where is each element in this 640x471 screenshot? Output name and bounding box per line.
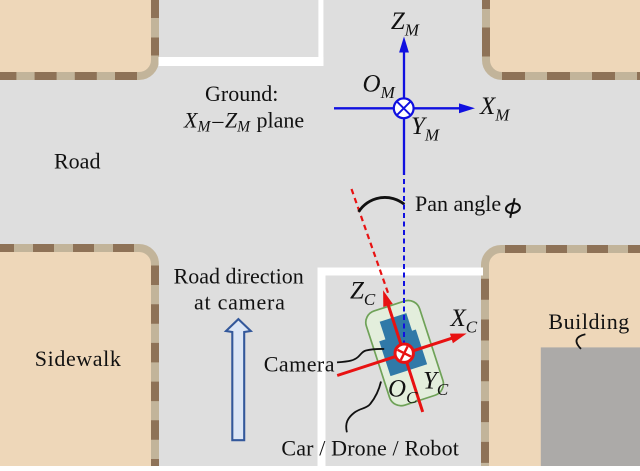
svg-text:Building: Building [548, 309, 629, 334]
svg-text:Camera: Camera [264, 352, 335, 377]
svg-text:Pan angle: Pan angle [415, 191, 501, 216]
svg-text:Sidewalk: Sidewalk [35, 346, 122, 371]
svg-text:Road direction: Road direction [174, 264, 304, 289]
svg-text:Ground:: Ground: [205, 81, 278, 106]
svg-text:at camera: at camera [194, 290, 286, 315]
svg-text:Car / Drone / Robot: Car / Drone / Robot [281, 436, 459, 461]
svg-text:Road: Road [54, 149, 100, 174]
